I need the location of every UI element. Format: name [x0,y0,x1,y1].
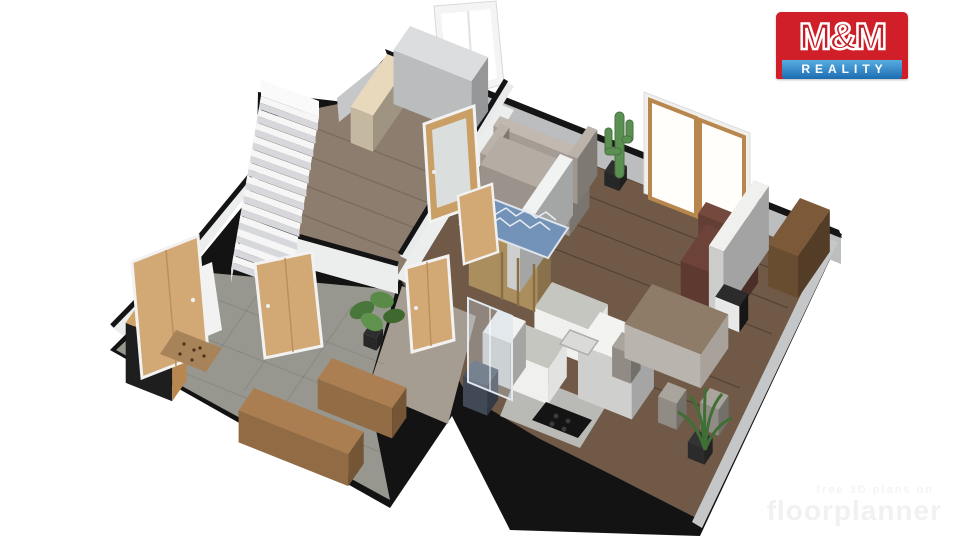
logo-blue-band: REALITY [782,60,902,79]
floorplanner-watermark: free 3D plans on floorplanner [767,484,942,526]
floorplan-3d-render [0,0,960,540]
shower-glass [468,298,512,400]
floorplan-3d-screenshot: M&M REALITY free 3D plans on floorplanne… [0,0,960,540]
door-living-corridor [458,184,498,264]
door-hall-interior [255,252,322,358]
watermark-brand: floorplanner [767,496,942,526]
logo-reality-text: REALITY [782,62,902,76]
logo-red-block: M&M REALITY [776,12,908,79]
logo-mm-text: M&M [773,13,910,60]
mm-reality-logo: M&M REALITY [776,12,908,79]
